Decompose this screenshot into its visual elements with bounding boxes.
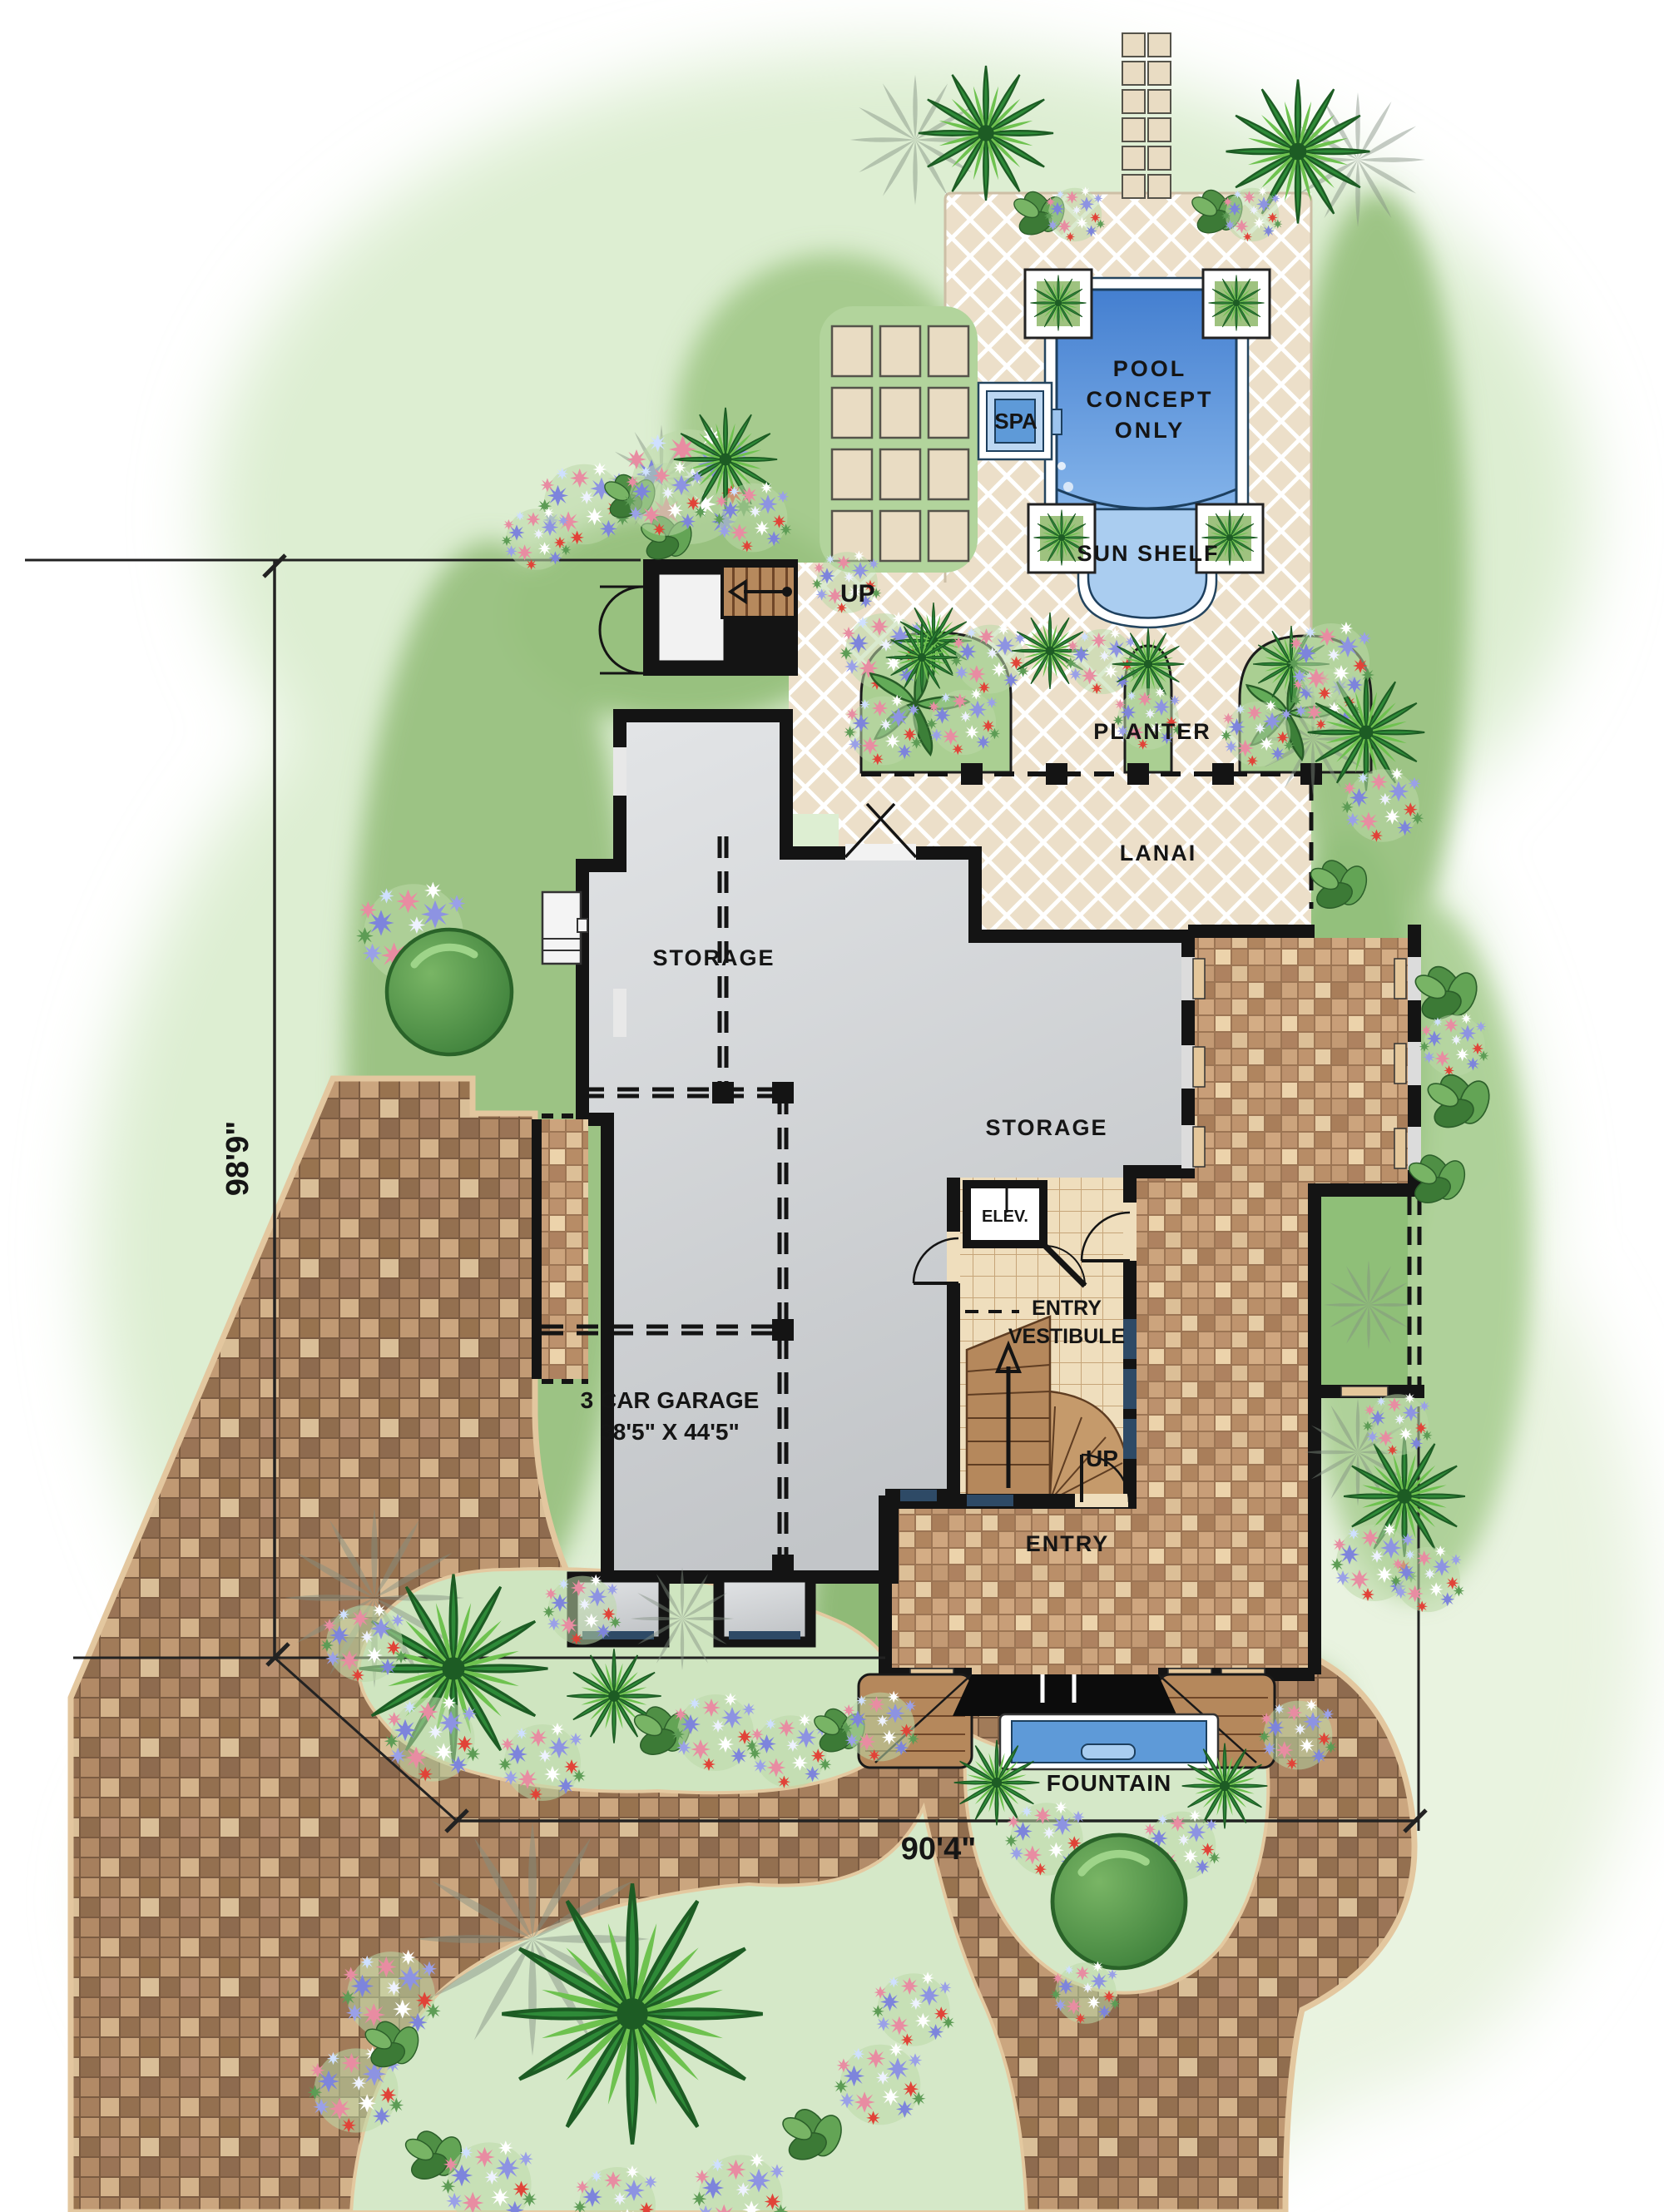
fountain-label: FOUNTAIN (1047, 1770, 1172, 1796)
dimension-south-label: 90'4" (901, 1832, 976, 1867)
pool-label-line3: ONLY (1115, 418, 1186, 443)
planter-label: PLANTER (1093, 719, 1211, 744)
side-walk-strip (537, 1116, 588, 1381)
vestibule-label-line1: ENTRY (1032, 1297, 1102, 1320)
dimension-west-label: 98'9" (220, 1121, 255, 1196)
storage-upper-label: STORAGE (652, 945, 775, 970)
storage-main-label: STORAGE (985, 1115, 1107, 1140)
pool-stairs-up-label: UP (840, 580, 875, 608)
vestibule-label-line2: VESTIBULE (1008, 1325, 1125, 1348)
equipment-pad (542, 892, 587, 964)
entry-label: ENTRY (1026, 1531, 1110, 1556)
round-shrub-icon (387, 930, 512, 1054)
pool-label-line2: CONCEPT (1086, 387, 1213, 412)
vestibule-stairs-up-label: UP (1086, 1446, 1118, 1471)
site-plan-drawing: POOL CONCEPT ONLY SPA SUN SHELF UP PLANT… (0, 0, 1664, 2212)
lanai-label: LANAI (1120, 841, 1197, 865)
spa-label: SPA (994, 409, 1038, 434)
stepping-stone-patio (820, 306, 978, 573)
elevator-label: ELEV. (982, 1208, 1028, 1226)
garage-label: 3 CAR GARAGE (581, 1387, 760, 1413)
site-plan-page: POOL CONCEPT ONLY SPA SUN SHELF UP PLANT… (0, 0, 1664, 2212)
garage-size-label: 38'5" X 44'5" (600, 1419, 740, 1445)
pool-label-line1: POOL (1113, 356, 1187, 381)
sun-shelf-label: SUN SHELF (1077, 541, 1219, 566)
